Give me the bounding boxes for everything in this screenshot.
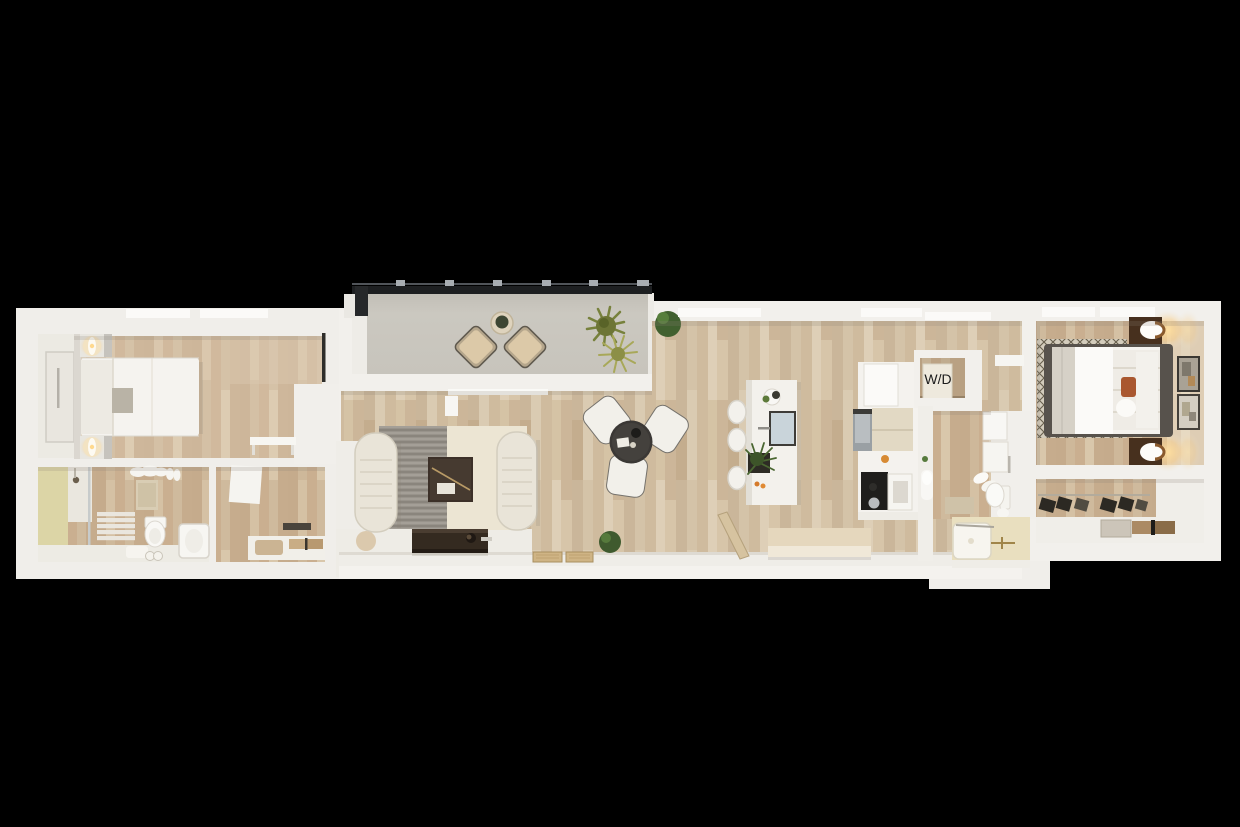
svg-text:W/D: W/D: [924, 371, 951, 387]
